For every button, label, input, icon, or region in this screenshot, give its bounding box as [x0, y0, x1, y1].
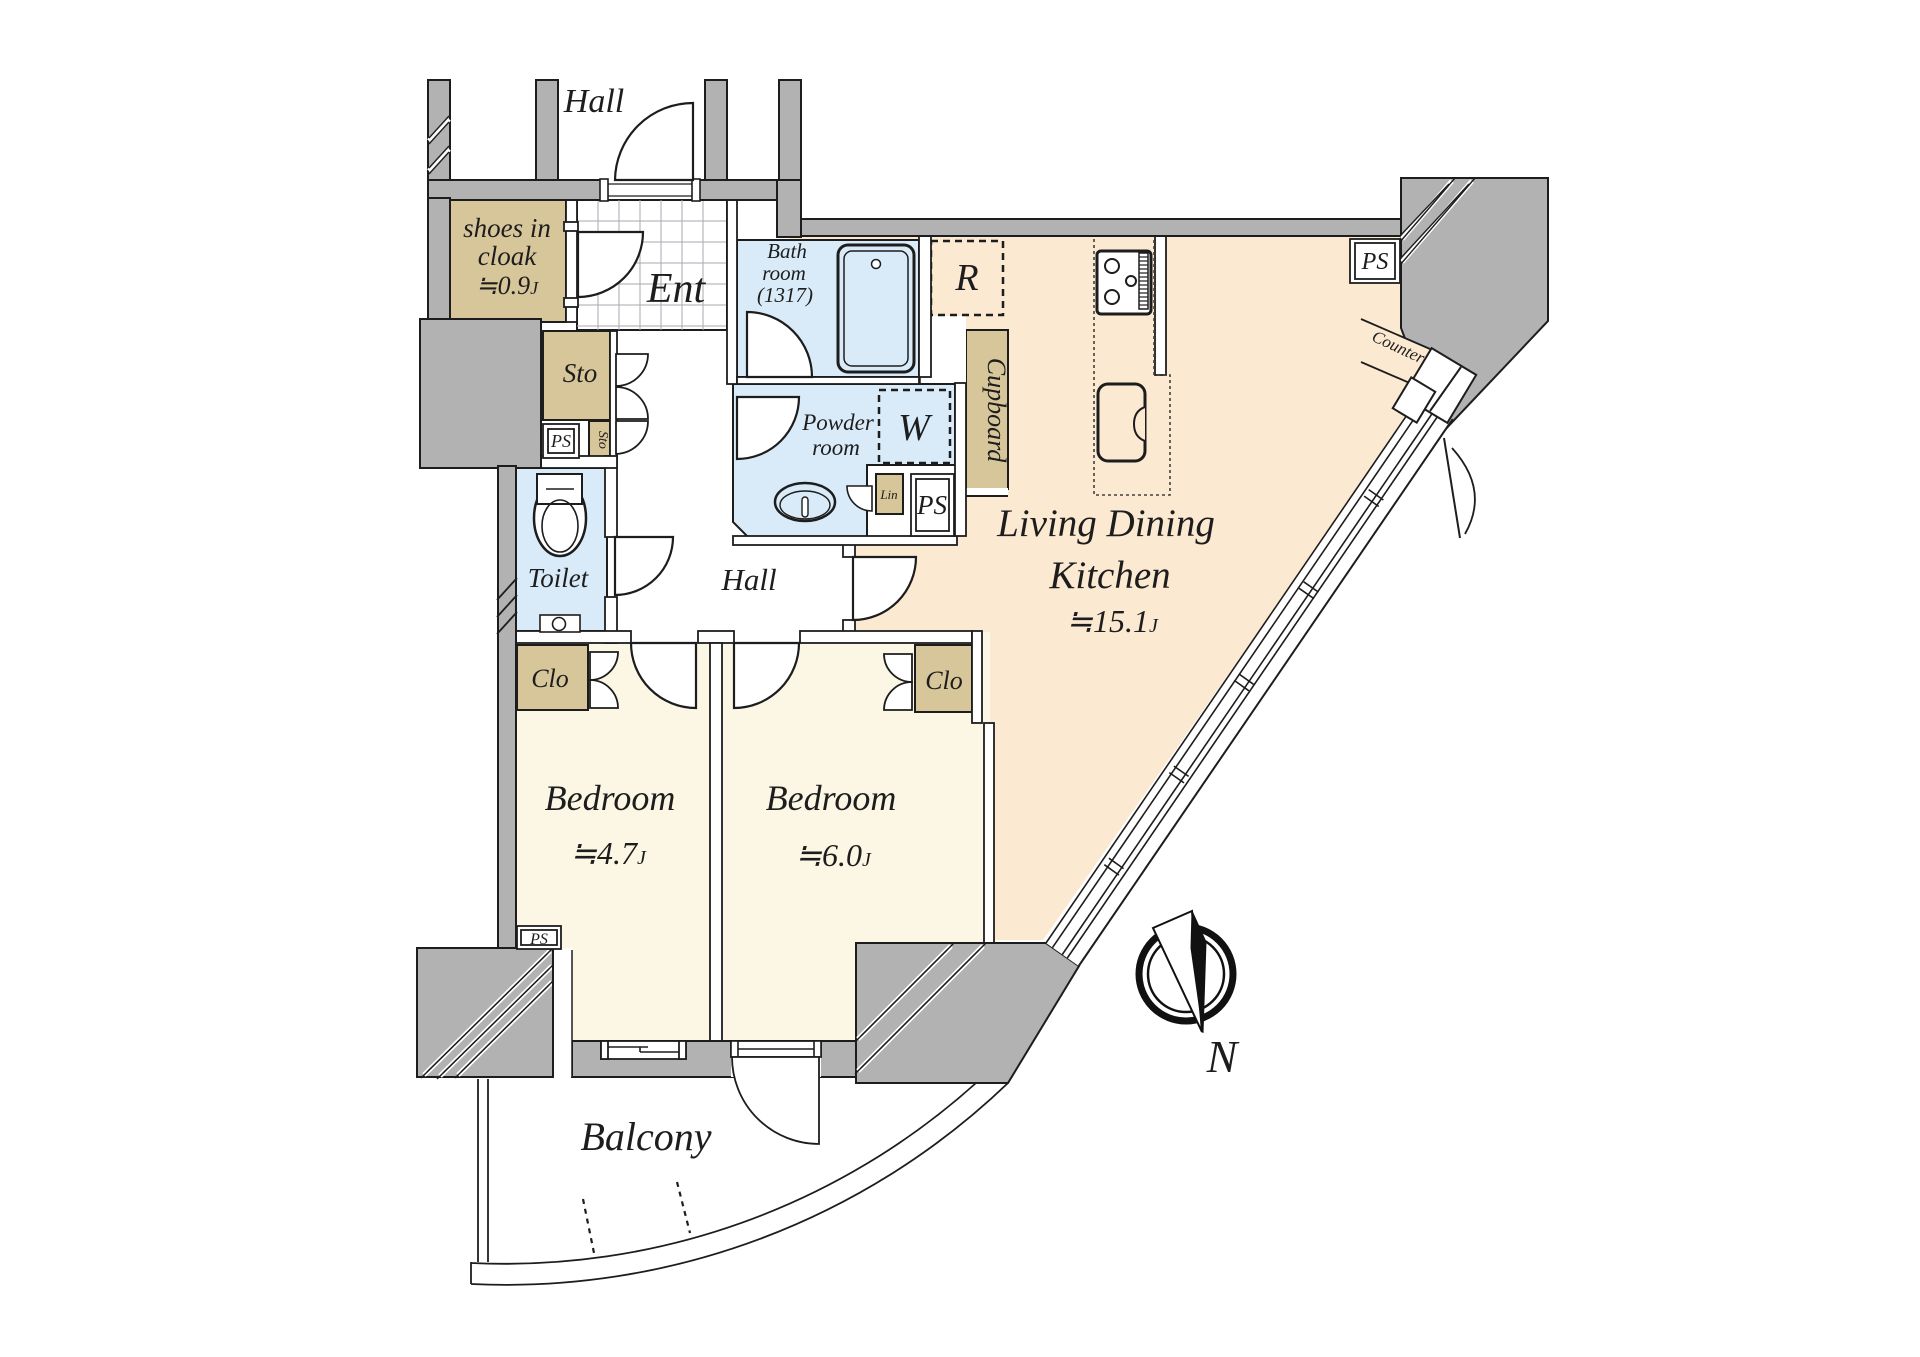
svg-text:Ent: Ent	[646, 266, 707, 312]
svg-text:Balcony: Balcony	[580, 1114, 711, 1159]
svg-text:PS: PS	[550, 431, 571, 451]
svg-text:Bedroom: Bedroom	[766, 778, 897, 818]
svg-text:R: R	[954, 257, 978, 299]
svg-text:≒15.1J: ≒15.1J	[1066, 603, 1159, 639]
svg-text:Sto: Sto	[595, 431, 610, 449]
svg-text:≒6.0J: ≒6.0J	[795, 837, 872, 873]
svg-text:Hall: Hall	[720, 562, 776, 597]
svg-text:≒4.7J: ≒4.7J	[570, 835, 647, 871]
svg-text:Toilet: Toilet	[528, 563, 590, 593]
svg-text:W: W	[898, 407, 933, 449]
svg-text:Hall: Hall	[563, 83, 624, 120]
svg-text:cloak: cloak	[478, 241, 537, 271]
svg-text:N: N	[1206, 1031, 1240, 1082]
svg-text:≒0.9J: ≒0.9J	[476, 271, 539, 300]
svg-text:Clo: Clo	[531, 664, 569, 693]
svg-text:Living Dining: Living Dining	[996, 502, 1215, 545]
svg-text:Lin: Lin	[879, 487, 897, 502]
svg-text:Clo: Clo	[925, 666, 963, 695]
svg-text:shoes in: shoes in	[463, 213, 551, 243]
svg-text:Bedroom: Bedroom	[545, 778, 676, 818]
svg-text:PS: PS	[1361, 249, 1389, 275]
svg-text:Cupboard: Cupboard	[982, 358, 1011, 463]
svg-text:PS: PS	[916, 490, 947, 520]
svg-text:Kitchen: Kitchen	[1048, 554, 1170, 597]
svg-text:(1317): (1317)	[757, 283, 813, 307]
svg-text:room: room	[812, 435, 860, 460]
svg-text:Bath: Bath	[767, 239, 807, 263]
svg-text:Powder: Powder	[801, 410, 875, 435]
svg-text:PS: PS	[529, 931, 548, 948]
svg-text:Sto: Sto	[563, 358, 598, 388]
svg-text:room: room	[762, 261, 806, 285]
